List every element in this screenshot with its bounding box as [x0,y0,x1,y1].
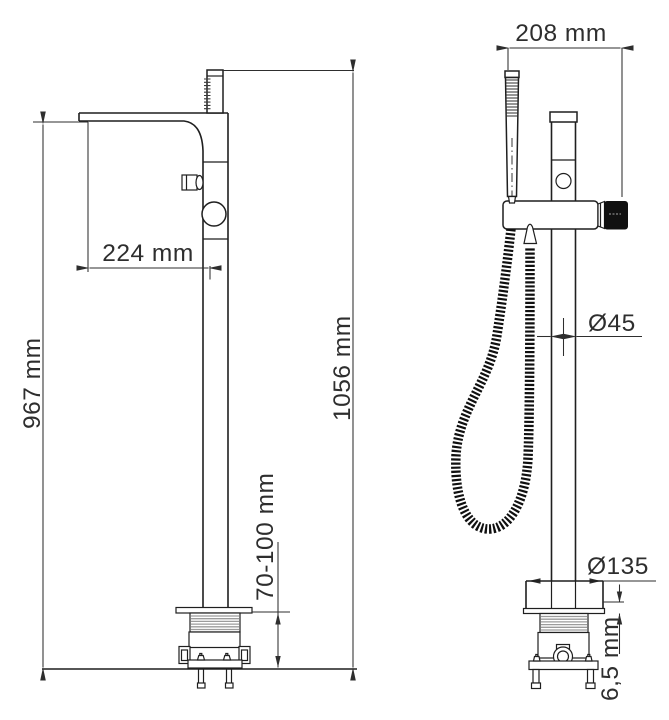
dimension-base-diameter: Ø135 [529,553,657,584]
dimension-overall-width: 208 mm [508,20,622,197]
dimension-riser-diameter: Ø45 [537,310,642,356]
temperature-handle [598,202,628,230]
diverter-knob [182,175,203,190]
base-mount-side [176,608,252,689]
handle-circle [202,202,226,226]
dimension-spout-reach: 224 mm [88,122,210,280]
hand-shower-side-profile [204,70,223,113]
dim-label-overall-width: 208 mm [515,20,607,47]
side-view: 967 mm 224 mm 70-100 mm 1056 mm [19,70,357,688]
technical-drawing-page: 967 mm 224 mm 70-100 mm 1056 mm [0,0,669,720]
hand-shower [505,71,519,203]
dimension-spout-height: 967 mm [19,122,88,668]
front-view: 208 mm Ø45 Ø135 [456,20,656,701]
dim-label-riser-diameter: Ø45 [588,310,636,337]
dim-label-spout-height: 967 mm [19,337,46,429]
dim-label-base-plate-thickness: 6,5 mm [597,616,624,701]
spout-and-column-outline [79,113,228,608]
dimension-overall-height: 1056 mm [223,71,356,668]
temperature-handle-black [605,202,628,230]
dim-label-floor-mount-depth: 70-100 mm [252,473,279,601]
base-flange [176,608,252,614]
mount-bolt [224,654,231,661]
base-mount-front [524,581,605,689]
dimension-base-plate-thickness: 6,5 mm [597,585,624,702]
freestanding-bath-mixer-drawing: 967 mm 224 mm 70-100 mm 1056 mm [0,0,669,720]
mixer-body-cross [503,201,598,229]
dim-label-base-diameter: Ø135 [587,553,649,580]
column-screw-circle [556,174,571,189]
dim-label-spout-reach: 224 mm [102,240,194,267]
dimension-floor-mount-depth: 70-100 mm [252,473,290,668]
mount-bolt [198,654,205,661]
shower-hose [456,229,530,529]
dim-label-overall-height: 1056 mm [329,315,356,421]
